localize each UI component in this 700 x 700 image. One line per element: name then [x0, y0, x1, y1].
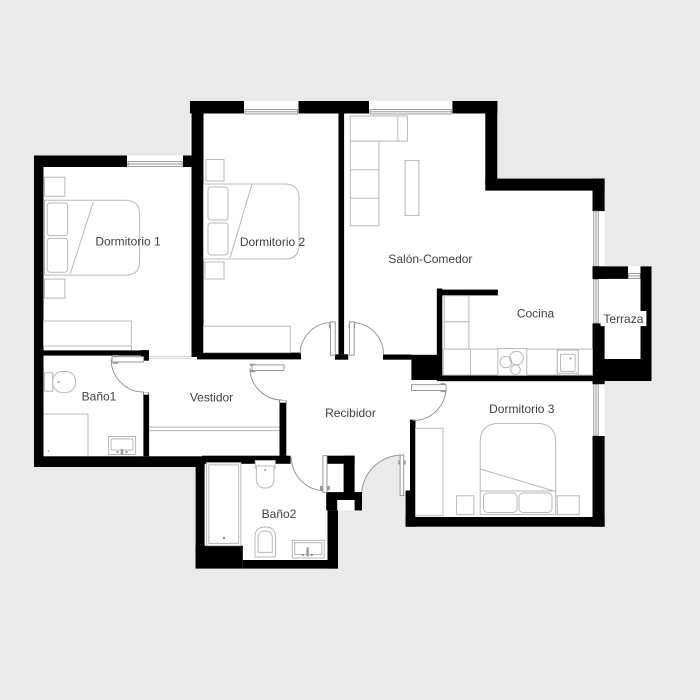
svg-text:Dormitorio 2: Dormitorio 2	[240, 235, 306, 249]
svg-text:Dormitorio 3: Dormitorio 3	[489, 402, 555, 416]
svg-text:Baño1: Baño1	[82, 390, 117, 404]
svg-text:Vestidor: Vestidor	[190, 391, 233, 405]
svg-text:Salón-Comedor: Salón-Comedor	[388, 252, 472, 266]
svg-text:Cocina: Cocina	[517, 307, 555, 321]
svg-text:Dormitorio 1: Dormitorio 1	[95, 235, 161, 249]
svg-text:Recibidor: Recibidor	[325, 406, 376, 420]
svg-text:Baño2: Baño2	[262, 507, 297, 521]
svg-text:Terraza: Terraza	[603, 312, 643, 326]
